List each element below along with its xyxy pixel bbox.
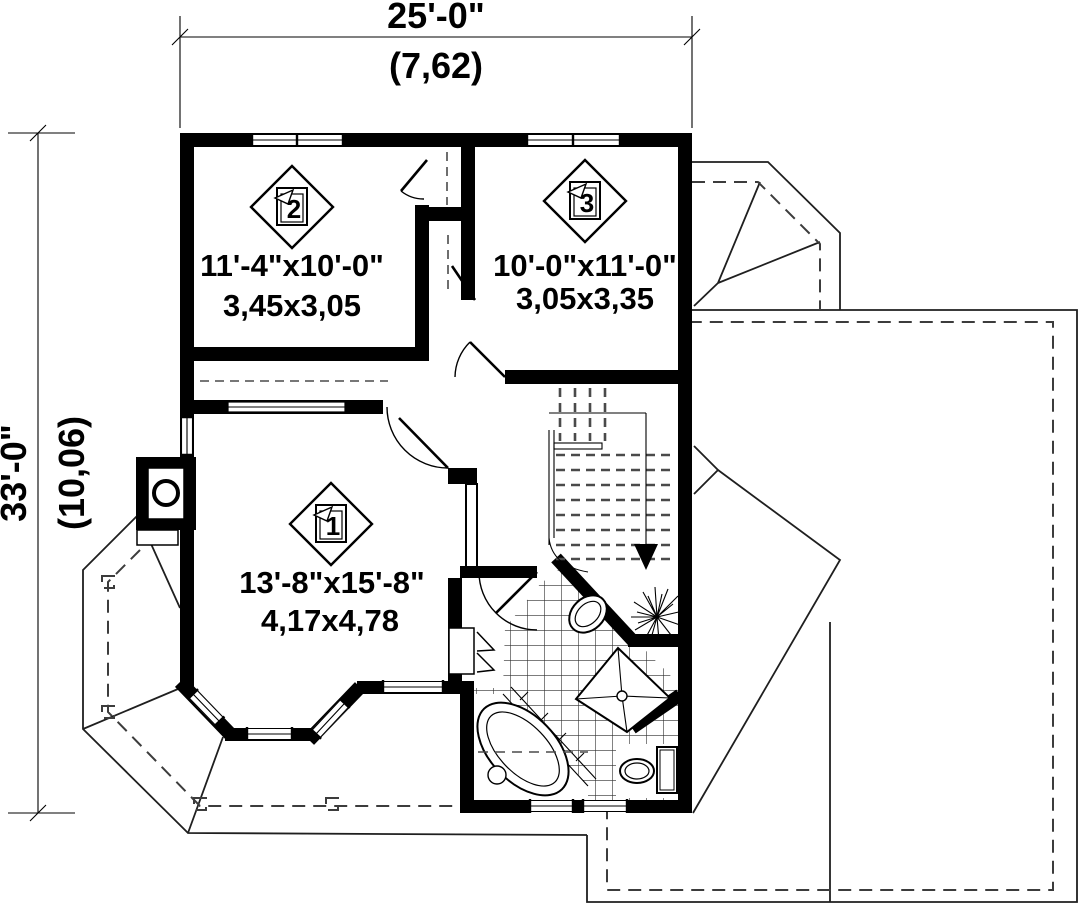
dormer-roof-outline	[692, 162, 840, 310]
room-3-size-imperial: 10'-0"x11'-0"	[493, 248, 677, 283]
door-arc-room2	[401, 191, 424, 199]
window	[252, 133, 343, 147]
porch-hips	[83, 515, 223, 833]
porch-post	[326, 798, 338, 810]
wall-room2-bottom	[194, 347, 429, 361]
chimney-ledge	[137, 530, 178, 545]
window	[527, 133, 620, 147]
wall-right	[678, 147, 692, 813]
wall-hall-closet	[461, 147, 475, 300]
room-marker-3: 3	[544, 160, 626, 242]
half-wall-railing	[466, 484, 477, 570]
room-number: 1	[326, 511, 340, 541]
stairs-down-arrow	[549, 413, 658, 570]
door-leaf-room2	[401, 160, 427, 191]
plant	[631, 587, 683, 641]
wall-corner-stub	[448, 468, 477, 484]
door-leaf-room3	[470, 342, 505, 377]
linen-closet	[449, 628, 474, 674]
window	[311, 699, 350, 739]
stair-treads-lower	[556, 455, 676, 559]
wall-room3-bottom	[505, 370, 692, 384]
wall-bottom-bath	[573, 800, 583, 813]
room-2-size-imperial: 11'-4"x10'-0"	[200, 248, 384, 283]
wall-bottom-bath	[627, 800, 692, 813]
floor-plan-drawing: 1 2 3 11'-4"x10'-0" 3,45x3,05 10'-0"x11'…	[0, 0, 1080, 906]
dimension-left: 33'-0" (10,06)	[0, 125, 92, 821]
window	[383, 680, 443, 694]
door-arc-room3	[455, 342, 470, 377]
floor-plan-page: 1 2 3 11'-4"x10'-0" 3,45x3,05 10'-0"x11'…	[0, 0, 1080, 906]
room-number: 2	[287, 194, 301, 224]
window	[530, 799, 573, 813]
roof-hip-tip	[694, 446, 718, 494]
dormer-overhang-dashed	[692, 182, 820, 310]
toilet	[616, 744, 678, 798]
room-marker-2: 2	[251, 166, 333, 248]
wall-bath-top	[460, 566, 537, 578]
roof-hip-line	[693, 470, 840, 813]
room-3-size-metric: 3,05x3,35	[516, 281, 654, 316]
window	[247, 727, 292, 741]
room-1-size-imperial: 13'-8"x15'-8"	[239, 565, 424, 600]
door-leaf-room1	[399, 418, 448, 468]
wall-room2-right	[415, 205, 429, 347]
room-marker-1: 1	[290, 483, 372, 565]
stair-treads-upper	[560, 388, 605, 441]
stair-landing-edge	[554, 443, 602, 449]
dimension-top: 25'-0" (7,62)	[172, 0, 700, 128]
dimension-top-metric: (7,62)	[389, 45, 483, 86]
bifold-door	[477, 632, 494, 672]
dimension-top-imperial: 25'-0"	[387, 0, 485, 36]
dormer-hips	[694, 182, 820, 306]
dimension-left-imperial: 33'-0"	[0, 424, 34, 522]
room-2-size-metric: 3,45x3,05	[223, 288, 361, 323]
room-1-size-metric: 4,17x4,78	[261, 603, 399, 638]
stairs	[549, 388, 676, 572]
dimension-left-metric: (10,06)	[51, 416, 92, 530]
room-labels: 11'-4"x10'-0" 3,45x3,05 10'-0"x11'-0" 3,…	[200, 248, 677, 638]
wall-bath-left	[460, 688, 474, 813]
wall-shower-top	[628, 634, 692, 647]
window	[188, 689, 224, 726]
stair-stringer	[549, 430, 554, 545]
chimney-flue	[154, 481, 178, 505]
window	[583, 799, 627, 813]
room-number: 3	[580, 188, 594, 218]
garage-roof-outline	[587, 310, 1077, 902]
window	[180, 417, 194, 455]
